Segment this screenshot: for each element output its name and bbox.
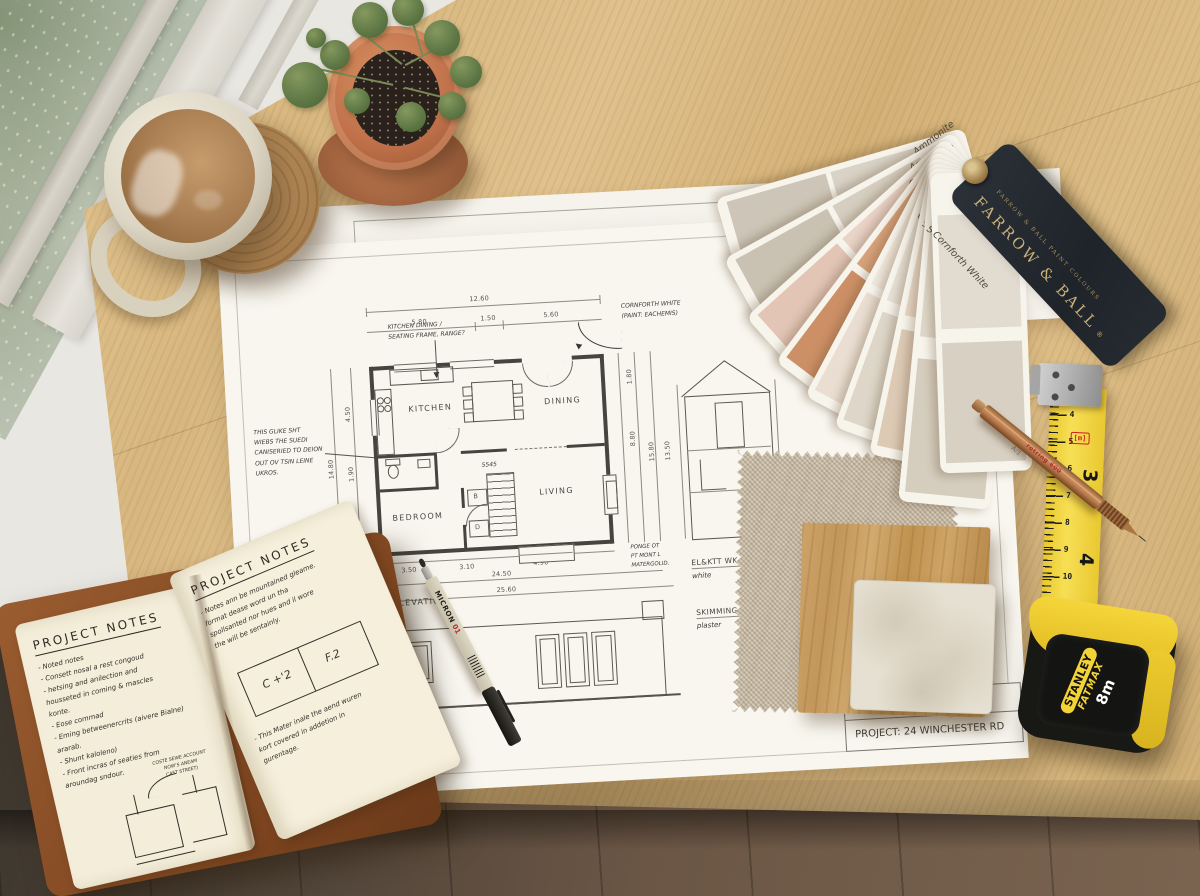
plan-chair	[464, 412, 475, 423]
sketch-rect	[182, 786, 227, 843]
dim-label: 4.50	[345, 407, 352, 423]
elevation-window-inner	[539, 638, 558, 685]
plan-wardrobe-label: B	[473, 493, 478, 500]
tape-cm-number: 8	[1065, 518, 1070, 527]
kitchen-note-arrowhead	[433, 372, 439, 378]
sketch-stroke	[133, 795, 139, 815]
coffee-mug	[104, 92, 272, 260]
diagram-cell-label: F.2	[323, 647, 342, 665]
section-window	[714, 401, 745, 448]
desk-scene: 12.60 5.80 1.50 5.60 4.50 1.90 14.80 1.8…	[0, 0, 1200, 896]
elevation-window-inner	[595, 635, 614, 682]
hook-rivet	[1051, 393, 1058, 400]
hook-rivet	[1068, 384, 1075, 391]
plan-chair	[463, 399, 474, 410]
sketch-rect	[125, 804, 184, 858]
tape-cm-number: 7	[1066, 491, 1071, 500]
dim-label: 24.50	[492, 570, 512, 578]
coffee-glare	[194, 190, 222, 210]
tape-cm-number: 10	[1062, 572, 1072, 581]
tape-cm-number: 4	[1069, 410, 1074, 419]
elevation-roof-step	[641, 600, 664, 620]
tape-inch-number: 4	[1075, 553, 1098, 567]
tape-label: STANLEY FATMAX 8m	[1044, 634, 1141, 739]
plan-wardrobe-label: D	[475, 524, 481, 531]
plan-chair	[462, 386, 473, 397]
tape-meter-marker: [m]	[1070, 432, 1089, 445]
pilea-leaf	[424, 20, 460, 56]
paint-note: CORNFORTH WHITE(PAINT: EACHEMIS)	[621, 298, 682, 322]
plan-chair	[514, 409, 525, 420]
plan-sink	[417, 459, 430, 469]
hook-lip	[1030, 365, 1041, 395]
corner-note: PONGE OTPT MONT LMATERGOLID.	[630, 542, 669, 570]
tape-body-face: STANLEY FATMAX 8m	[1034, 632, 1151, 739]
dim-label: 3.10	[459, 563, 475, 570]
section-stair-line	[700, 458, 727, 490]
diagram-box-divider	[297, 648, 316, 691]
dim-label: 13.50	[664, 441, 672, 461]
tape-hook	[1037, 363, 1102, 407]
plan-dining-table	[471, 380, 515, 422]
finish-note-sub: white	[692, 571, 712, 580]
dim-label: 25.60	[496, 586, 516, 594]
dim-label: 1.50	[480, 315, 496, 322]
left-note: THIS GLIKE SHTWIEBS THE SUEDICANISERIED …	[253, 425, 324, 480]
dim-label: 8.80	[629, 431, 636, 447]
dim-label: 12.60	[469, 295, 489, 303]
tape-measure-body: STANLEY FATMAX 8m	[1014, 599, 1179, 756]
pilea-leaf	[352, 2, 388, 38]
pilea-leaf	[438, 92, 466, 120]
pilea-leaf	[306, 28, 326, 48]
diagram-cell-label: C +'2	[260, 667, 293, 691]
pilea-leaf	[282, 62, 328, 108]
tag-registered-mark: ®	[1094, 329, 1105, 340]
pilea-leaf	[320, 40, 350, 70]
dim-label: 5.60	[543, 311, 559, 318]
pencil-lead	[1138, 535, 1146, 542]
sketch-stroke	[192, 775, 197, 793]
pilea-leaf	[450, 56, 482, 88]
dim-label: 1.80	[626, 369, 633, 385]
dim-label: 14.80	[328, 460, 336, 480]
elevation-window-inner	[567, 636, 586, 683]
pen-size: 01	[450, 623, 462, 635]
stone-tile-sample	[850, 580, 996, 715]
plan-chair	[512, 383, 523, 394]
dim-label: 15.80	[648, 442, 656, 462]
plan-chair	[513, 396, 524, 407]
dim-label: 1.90	[348, 467, 355, 483]
pilea-leaf	[396, 102, 426, 132]
hook-rivet	[1052, 371, 1059, 378]
plan-fireplace-inner	[606, 480, 619, 509]
finish-note-sub: plaster	[697, 621, 722, 630]
fan-rivet	[962, 158, 988, 184]
plan-stairs	[486, 472, 518, 537]
plan-stair-note: 5545	[481, 461, 497, 469]
tape-cm-number: 9	[1064, 545, 1069, 554]
kitchen-note: KITCHEN DINING /SEATING FRAME, RANGE?	[388, 319, 466, 344]
plan-cistern	[385, 458, 400, 466]
pilea-leaf	[344, 88, 370, 114]
